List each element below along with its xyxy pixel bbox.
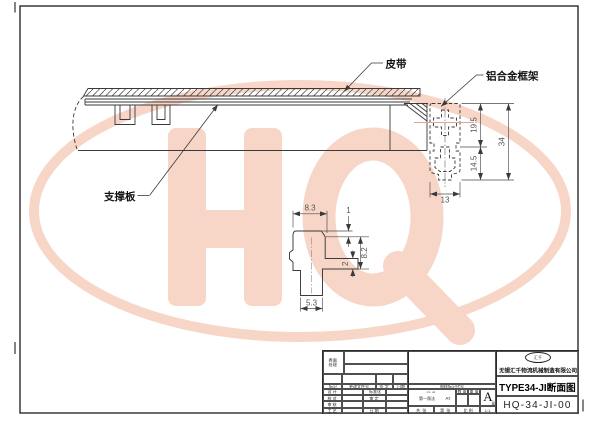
sign-field bbox=[386, 408, 408, 414]
dim-34: 34 bbox=[498, 137, 507, 146]
drawing-sheet: 19.5 14.5 34 13 支撑板 皮带 铝合金框架 bbox=[0, 0, 600, 424]
belt-label: 皮带 bbox=[385, 58, 407, 71]
detail-dim-texts: 8.3 1 8.2 2 5.3 bbox=[304, 204, 368, 308]
surface-treatment-label: 表面处理 bbox=[329, 358, 339, 367]
revision-row-cell bbox=[342, 374, 376, 383]
qty-value bbox=[456, 394, 468, 406]
dim-5-3: 5.3 bbox=[306, 299, 318, 308]
extrusion-dim-texts: 19.5 14.5 34 13 bbox=[441, 117, 507, 205]
detail-view: 8.3 1 8.2 2 5.3 bbox=[290, 204, 370, 312]
surface-treatment-cell: 表面处理 bbox=[323, 351, 344, 374]
scale-label-cell: 比 例 bbox=[456, 406, 480, 414]
end-cap bbox=[390, 104, 428, 151]
revision-cell-2 bbox=[344, 364, 408, 374]
stage-mark-cell: A 级 bbox=[480, 389, 496, 407]
revision-row-cell bbox=[323, 374, 342, 383]
dim-8-2: 8.2 bbox=[360, 247, 369, 259]
sign-label: 工 艺 bbox=[323, 408, 342, 414]
u-channel-1 bbox=[115, 105, 135, 125]
section-divider bbox=[408, 351, 409, 414]
company-name: 无锡汇千物流机械制造有限公司 bbox=[498, 366, 576, 374]
revision-row-cell bbox=[376, 374, 393, 383]
support-plate bbox=[85, 99, 412, 105]
u-channel-2-inner bbox=[157, 105, 165, 120]
projection-method: 第一角法 bbox=[419, 396, 435, 402]
sign-field bbox=[342, 408, 363, 414]
scale-value-cell: 1:1 bbox=[480, 406, 496, 414]
revision-row-cell bbox=[393, 374, 408, 383]
alu-frame-label: 铝合金框架 bbox=[486, 70, 539, 83]
sheet-no-cell: 第 张 bbox=[434, 406, 456, 414]
blank-cell bbox=[408, 351, 496, 384]
projection-cell: 第一角法 A3 bbox=[408, 389, 456, 407]
dim-8-3: 8.3 bbox=[304, 204, 316, 213]
drawing-title-cell: TYPE34-JI断面图 bbox=[496, 376, 579, 396]
drawing-number-cell: HQ-34-JI-00 bbox=[496, 396, 579, 414]
company-logo: 汇千 bbox=[525, 352, 551, 363]
belt-hatch bbox=[84, 89, 421, 97]
title-block: 表面处理 标记 更改文件号 签 字 日期 设 计 标准化 校 对 审 定 bbox=[322, 350, 579, 414]
sheet-size: A3 bbox=[446, 396, 451, 402]
support-plate-label: 支撑板 bbox=[103, 190, 136, 203]
weight-value bbox=[468, 394, 480, 406]
drawing-number: HQ-34-JI-00 bbox=[503, 400, 571, 411]
u-channel-2 bbox=[152, 105, 170, 125]
u-channel-1-inner bbox=[120, 105, 130, 120]
drawing-title: TYPE34-JI断面图 bbox=[499, 379, 576, 394]
dim-19-5: 19.5 bbox=[470, 117, 479, 133]
leaders bbox=[138, 63, 484, 196]
total-sheets-cell: 共 张 bbox=[408, 406, 434, 414]
section-divider bbox=[496, 351, 497, 414]
dim-2: 2 bbox=[341, 261, 350, 266]
company-cell: 汇千 无锡汇千物流机械制造有限公司 bbox=[496, 351, 579, 376]
revision-cell-1 bbox=[344, 351, 408, 364]
main-view bbox=[73, 89, 428, 151]
break-line bbox=[73, 97, 84, 151]
sign-label: 日 期 bbox=[363, 408, 386, 414]
dim-1: 1 bbox=[346, 206, 351, 215]
dim-14-5: 14.5 bbox=[470, 155, 479, 171]
dim-13: 13 bbox=[441, 196, 450, 205]
